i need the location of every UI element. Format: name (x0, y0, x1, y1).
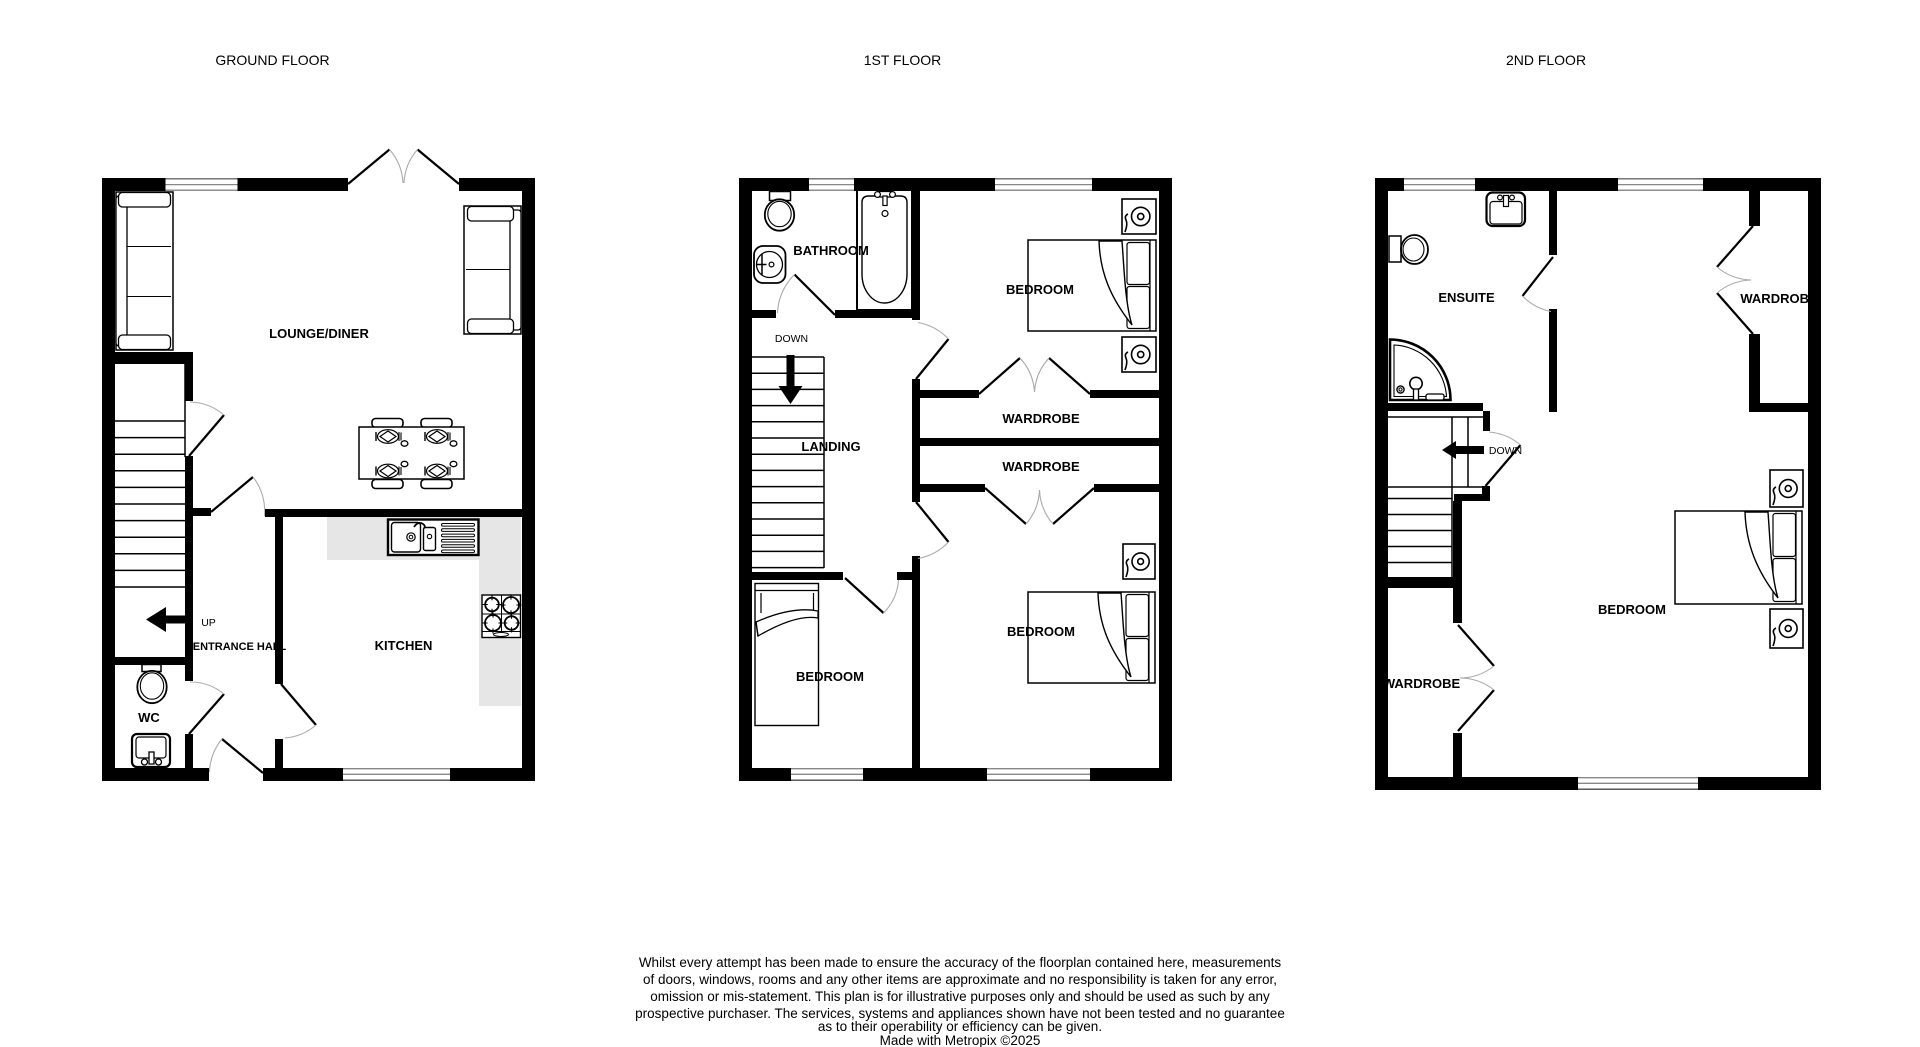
svg-text:BEDROOM: BEDROOM (1006, 282, 1074, 297)
svg-text:GROUND FLOOR: GROUND FLOOR (215, 52, 329, 68)
svg-text:WARDROBE: WARDROBE (1383, 676, 1461, 691)
svg-text:BEDROOM: BEDROOM (1598, 602, 1666, 617)
svg-text:ENTRANCE HALL: ENTRANCE HALL (193, 641, 287, 653)
svg-text:BEDROOM: BEDROOM (1007, 624, 1075, 639)
svg-text:BATHROOM: BATHROOM (793, 243, 869, 258)
svg-text:WARDROBE: WARDROBE (1002, 411, 1080, 426)
svg-text:WARDROBE: WARDROBE (1002, 459, 1080, 474)
svg-text:WARDROBE: WARDROBE (1740, 291, 1818, 306)
svg-text:DOWN: DOWN (1489, 445, 1522, 457)
svg-text:DOWN: DOWN (775, 333, 808, 345)
svg-text:1ST FLOOR: 1ST FLOOR (864, 52, 942, 68)
svg-text:ENSUITE: ENSUITE (1438, 290, 1495, 305)
svg-text:BEDROOM: BEDROOM (796, 669, 864, 684)
svg-text:LOUNGE/DINER: LOUNGE/DINER (269, 326, 369, 341)
svg-text:Whilst every attempt has been: Whilst every attempt has been made to en… (639, 955, 1282, 970)
svg-text:of doors, windows, rooms and a: of doors, windows, rooms and any other i… (643, 972, 1277, 987)
svg-text:LANDING: LANDING (801, 439, 860, 454)
svg-text:omission or mis-statement. Thi: omission or mis-statement. This plan is … (650, 989, 1270, 1004)
svg-text:Made with Metropix ©2025: Made with Metropix ©2025 (880, 1033, 1041, 1047)
svg-text:UP: UP (201, 617, 216, 629)
svg-text:2ND FLOOR: 2ND FLOOR (1506, 52, 1586, 68)
svg-text:as to their operability or eff: as to their operability or efficiency ca… (818, 1019, 1102, 1034)
svg-text:KITCHEN: KITCHEN (375, 638, 433, 653)
svg-text:WC: WC (138, 710, 160, 725)
